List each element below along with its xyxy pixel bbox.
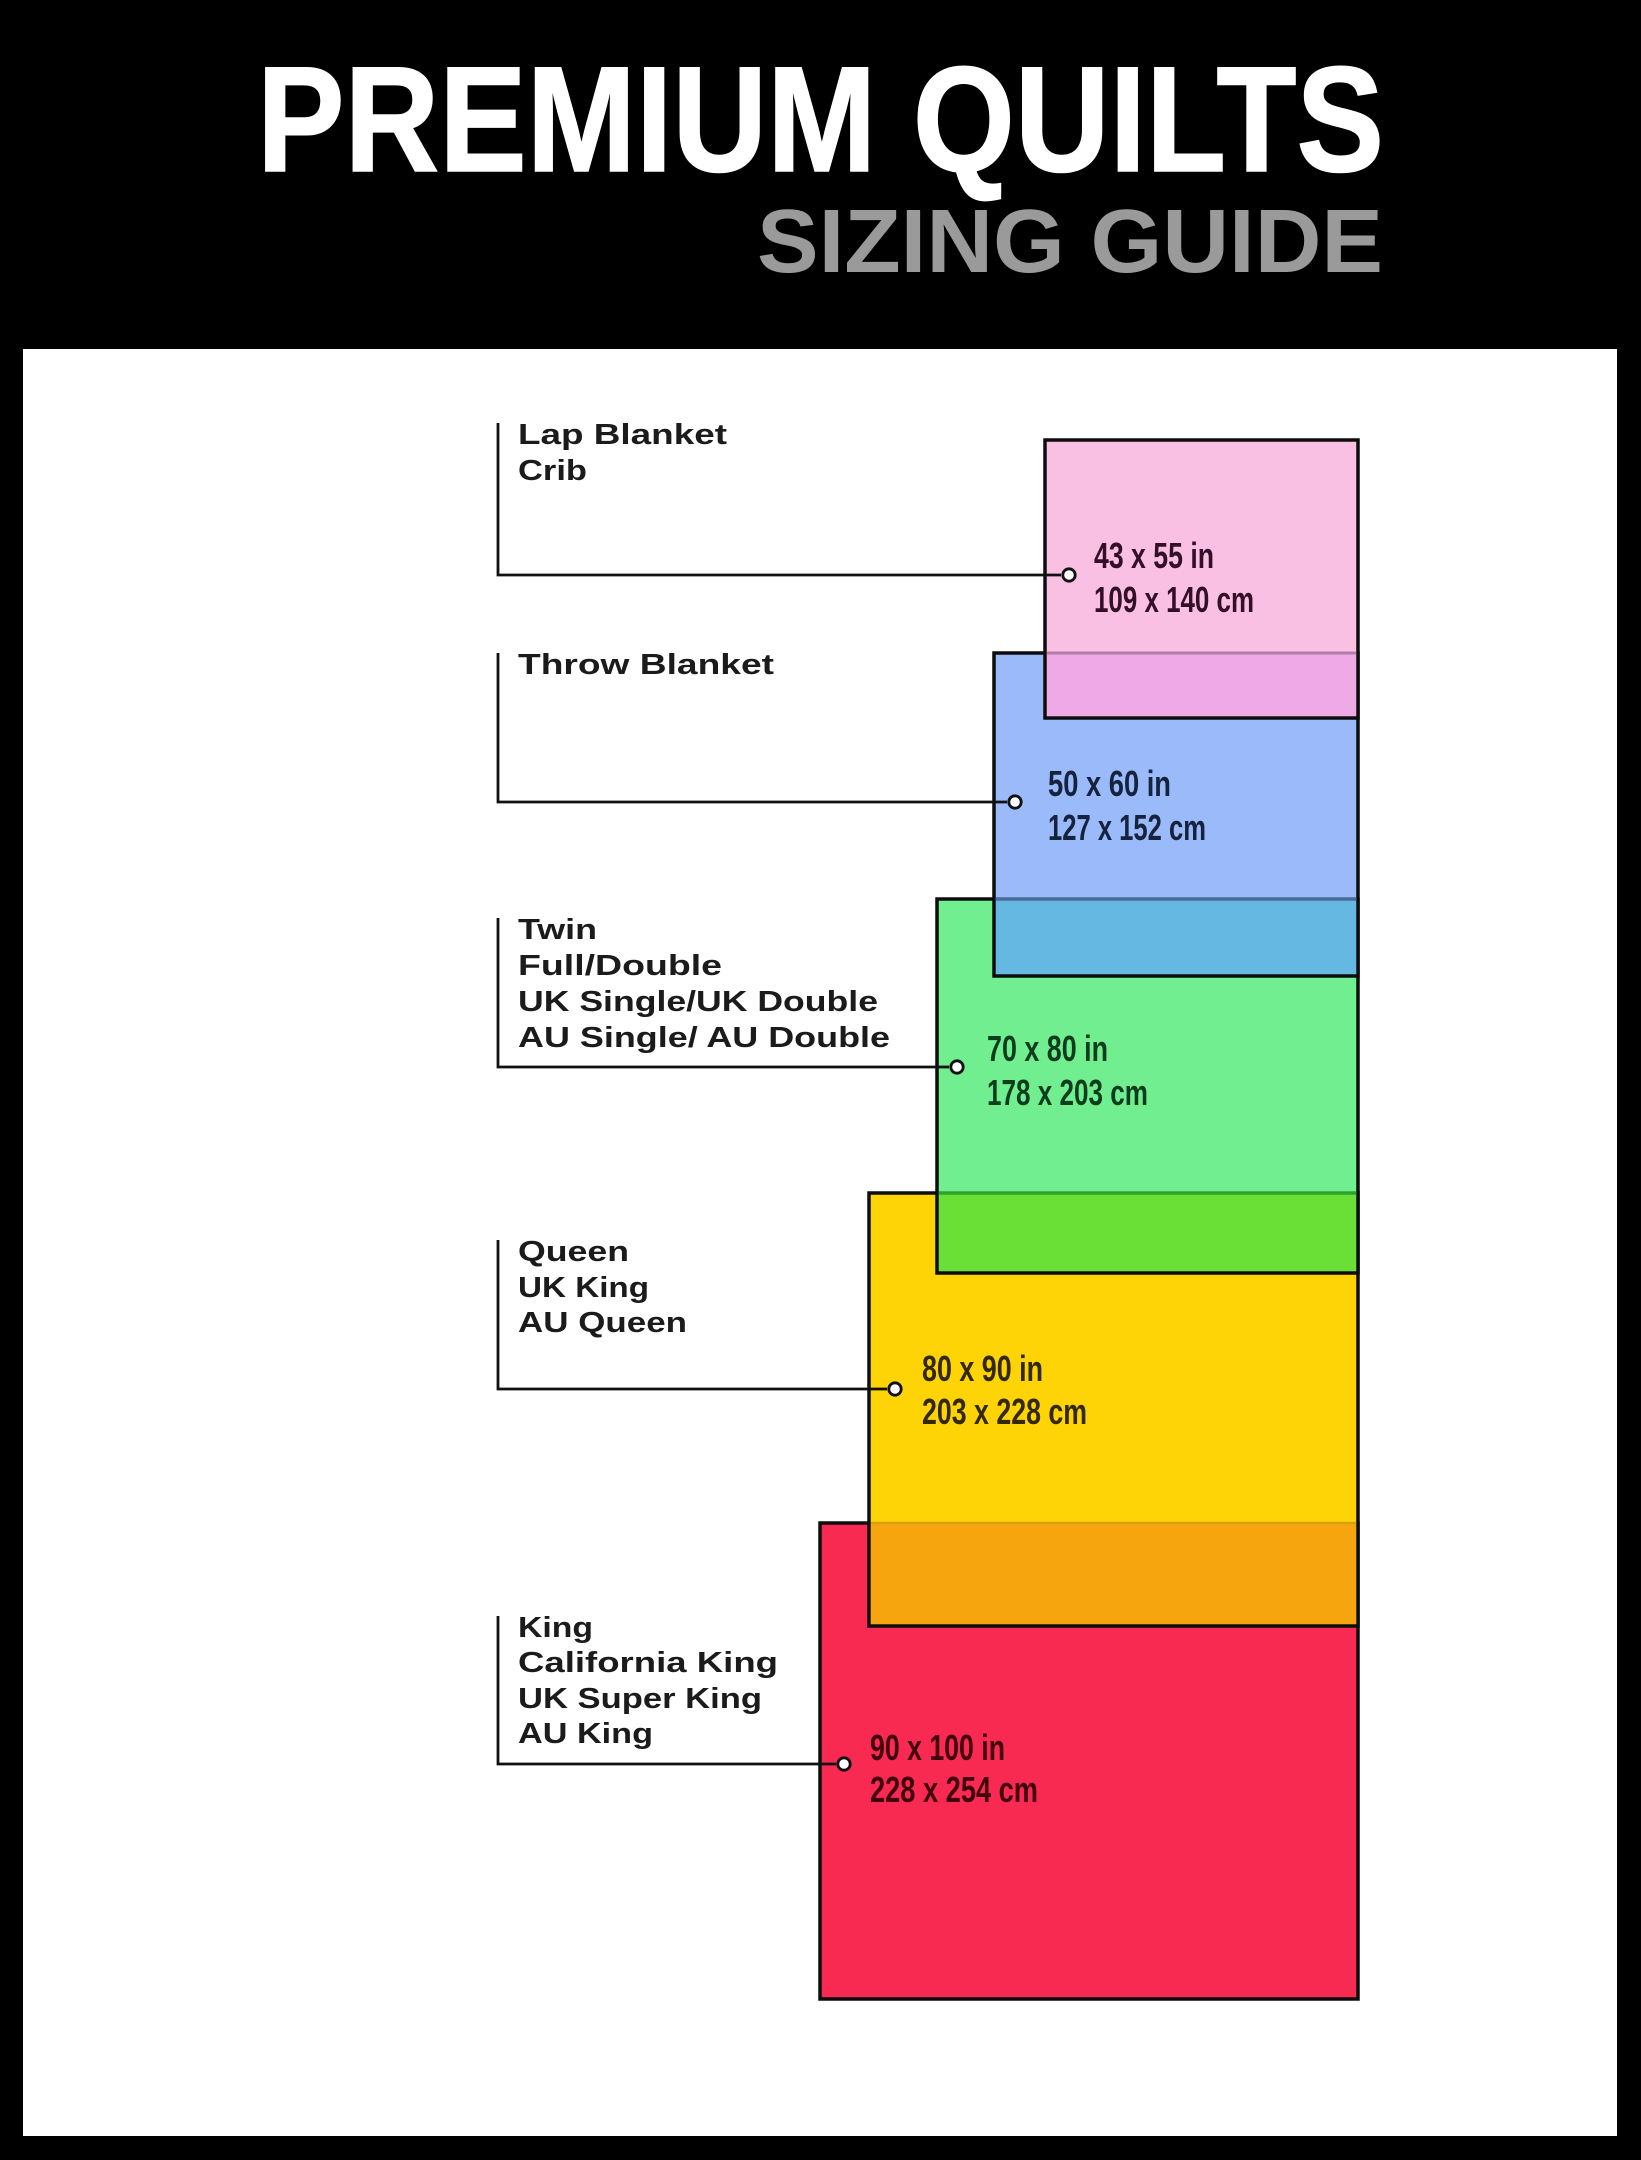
svg-text:UK Single/UK Double: UK Single/UK Double (518, 986, 878, 1018)
svg-text:178 x 203 cm: 178 x 203 cm (987, 1072, 1148, 1113)
svg-text:PREMIUM QUILTS: PREMIUM QUILTS (257, 35, 1384, 203)
svg-text:Crib: Crib (518, 455, 587, 487)
svg-text:228 x 254 cm: 228 x 254 cm (870, 1769, 1038, 1810)
svg-text:Queen: Queen (518, 1236, 629, 1268)
svg-text:109 x 140 cm: 109 x 140 cm (1094, 579, 1254, 620)
svg-text:Full/Double: Full/Double (518, 950, 722, 982)
svg-text:California King: California King (518, 1647, 778, 1679)
svg-text:70 x 80 in: 70 x 80 in (987, 1028, 1108, 1069)
svg-text:UK Super King: UK Super King (518, 1683, 762, 1715)
svg-text:127 x 152 cm: 127 x 152 cm (1048, 807, 1206, 848)
svg-text:AU Queen: AU Queen (518, 1307, 687, 1339)
svg-text:SIZING GUIDE: SIZING GUIDE (757, 192, 1383, 292)
svg-text:90 x 100 in: 90 x 100 in (870, 1727, 1005, 1768)
svg-text:Twin: Twin (518, 914, 597, 946)
svg-text:Throw Blanket: Throw Blanket (518, 649, 774, 681)
svg-text:King: King (518, 1612, 593, 1644)
svg-text:80 x 90 in: 80 x 90 in (922, 1348, 1043, 1389)
svg-text:50 x 60 in: 50 x 60 in (1048, 763, 1171, 804)
svg-text:AU Single/ AU Double: AU Single/ AU Double (518, 1022, 890, 1054)
svg-text:Lap Blanket: Lap Blanket (518, 419, 727, 451)
svg-text:UK King: UK King (518, 1272, 649, 1304)
svg-text:AU King: AU King (518, 1718, 653, 1750)
svg-text:43 x 55 in: 43 x 55 in (1094, 535, 1214, 576)
svg-text:203 x 228 cm: 203 x 228 cm (922, 1391, 1087, 1432)
